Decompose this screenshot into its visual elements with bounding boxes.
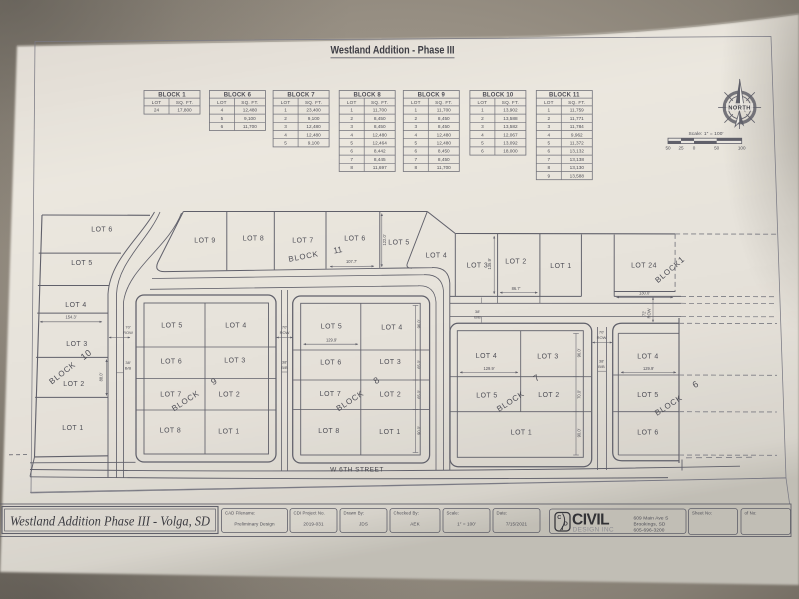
- svg-text:11,784: 11,784: [570, 124, 584, 129]
- svg-text:LOT 7: LOT 7: [160, 392, 182, 399]
- svg-text:2: 2: [284, 116, 287, 121]
- svg-text:BLOCK 7: BLOCK 7: [287, 92, 315, 98]
- svg-text:2019-031: 2019-031: [303, 522, 324, 527]
- svg-text:5: 5: [481, 141, 484, 146]
- svg-text:3: 3: [547, 124, 550, 129]
- svg-text:13,130: 13,130: [570, 165, 585, 170]
- svg-text:Preliminary Design: Preliminary Design: [234, 522, 275, 527]
- svg-text:LOT 4: LOT 4: [637, 354, 659, 361]
- svg-text:65.0′: 65.0′: [417, 390, 422, 399]
- svg-text:70′: 70′: [282, 325, 287, 330]
- svg-text:B/B: B/B: [125, 365, 132, 370]
- svg-text:LOT 6: LOT 6: [161, 359, 183, 366]
- svg-text:0: 0: [693, 146, 696, 151]
- svg-text:LOT 5: LOT 5: [388, 240, 410, 247]
- svg-text:8: 8: [350, 165, 353, 170]
- svg-text:130.0′: 130.0′: [639, 291, 650, 296]
- svg-text:LOT 6: LOT 6: [320, 360, 342, 367]
- svg-text:3: 3: [350, 124, 353, 129]
- svg-text:13,092: 13,092: [503, 141, 518, 146]
- svg-text:ROW: ROW: [123, 330, 133, 335]
- svg-text:LOT 4: LOT 4: [476, 353, 498, 360]
- svg-text:13,588: 13,588: [503, 116, 518, 121]
- svg-text:LOT 8: LOT 8: [243, 236, 265, 243]
- svg-text:18,000: 18,000: [503, 149, 518, 154]
- svg-text:LOT 6: LOT 6: [91, 227, 113, 234]
- svg-text:LOT: LOT: [478, 100, 488, 105]
- svg-text:LOT 6: LOT 6: [637, 430, 659, 437]
- svg-text:9,100: 9,100: [244, 116, 256, 121]
- svg-text:13,902: 13,902: [503, 108, 518, 113]
- svg-text:BLOCK 11: BLOCK 11: [549, 92, 580, 98]
- svg-text:LOT 5: LOT 5: [637, 392, 659, 399]
- svg-text:BLOCK 10: BLOCK 10: [482, 92, 513, 98]
- svg-text:LOT 2: LOT 2: [505, 259, 527, 266]
- svg-text:12,480: 12,480: [373, 132, 388, 137]
- svg-text:LOT 5: LOT 5: [476, 393, 498, 400]
- svg-text:122.0′: 122.0′: [382, 234, 387, 245]
- svg-text:24: 24: [154, 108, 160, 113]
- svg-text:BLOCK 6: BLOCK 6: [224, 92, 252, 98]
- svg-text:17,800: 17,800: [177, 108, 192, 113]
- svg-text:LOT 3: LOT 3: [224, 358, 246, 365]
- svg-text:CAD Filename:: CAD Filename:: [225, 511, 255, 516]
- svg-text:1″ = 100′: 1″ = 100′: [457, 522, 476, 527]
- svg-text:12,480: 12,480: [306, 132, 321, 137]
- svg-text:38′: 38′: [599, 359, 604, 364]
- svg-text:LOT 3: LOT 3: [66, 341, 88, 348]
- svg-text:8,450: 8,450: [374, 116, 386, 121]
- svg-text:Checked By:: Checked By:: [394, 511, 419, 516]
- svg-text:4: 4: [284, 132, 287, 137]
- svg-text:38′: 38′: [475, 309, 480, 314]
- svg-text:12,464: 12,464: [373, 141, 388, 146]
- svg-text:SQ. FT.: SQ. FT.: [502, 100, 519, 105]
- svg-text:8: 8: [414, 165, 417, 170]
- svg-text:4: 4: [414, 132, 417, 137]
- svg-text:4: 4: [350, 132, 353, 137]
- svg-text:SQ. FT.: SQ. FT.: [568, 100, 585, 105]
- svg-text:129.9′: 129.9′: [483, 366, 494, 371]
- svg-text:LOT 5: LOT 5: [161, 323, 183, 330]
- svg-text:1: 1: [547, 108, 550, 113]
- svg-text:38′: 38′: [282, 360, 287, 365]
- svg-text:JDS: JDS: [359, 522, 368, 527]
- svg-text:5: 5: [350, 141, 353, 146]
- svg-text:B/B: B/B: [598, 364, 605, 369]
- svg-text:LOT 2: LOT 2: [63, 381, 85, 388]
- svg-text:BLOCK 1: BLOCK 1: [158, 92, 186, 98]
- svg-text:90.0′: 90.0′: [417, 426, 422, 435]
- svg-text:70′: 70′: [599, 330, 604, 335]
- svg-text:12,067: 12,067: [503, 132, 518, 137]
- svg-text:1: 1: [414, 108, 417, 113]
- svg-text:8,442: 8,442: [374, 149, 386, 154]
- svg-text:Westland Addition - Phase III: Westland Addition - Phase III: [331, 45, 455, 57]
- svg-text:4: 4: [481, 132, 484, 137]
- svg-text:11,700: 11,700: [437, 165, 451, 170]
- svg-text:70.0′: 70.0′: [577, 390, 582, 399]
- svg-text:LOT: LOT: [152, 100, 162, 105]
- svg-text:Scale:: Scale:: [447, 511, 460, 516]
- svg-text:Westland Addition Phase III -: Westland Addition Phase III - Volga, SD: [10, 514, 210, 529]
- svg-text:LOT 24: LOT 24: [631, 263, 657, 270]
- svg-text:7: 7: [414, 157, 417, 162]
- svg-text:9: 9: [547, 173, 550, 178]
- svg-text:8,450: 8,450: [374, 124, 386, 129]
- svg-text:129.9′: 129.9′: [643, 366, 654, 371]
- svg-text:2: 2: [547, 116, 550, 121]
- svg-text:7: 7: [350, 157, 353, 162]
- svg-text:LOT: LOT: [544, 100, 554, 105]
- svg-text:W 6TH STREET: W 6TH STREET: [330, 467, 384, 474]
- svg-text:LOT 1: LOT 1: [218, 429, 240, 436]
- svg-text:LOT 1: LOT 1: [62, 425, 84, 432]
- svg-text:8,450: 8,450: [438, 149, 450, 154]
- svg-text:11,372: 11,372: [570, 141, 584, 146]
- svg-text:SQ. FT.: SQ. FT.: [435, 100, 452, 105]
- svg-text:8,450: 8,450: [438, 116, 450, 121]
- svg-text:6: 6: [481, 149, 484, 154]
- svg-text:B/B: B/B: [281, 365, 288, 370]
- svg-text:11,700: 11,700: [373, 108, 387, 113]
- svg-text:11,700: 11,700: [243, 124, 257, 129]
- svg-text:SQ. FT.: SQ. FT.: [371, 100, 388, 105]
- svg-text:6: 6: [414, 149, 417, 154]
- svg-text:13,582: 13,582: [503, 124, 518, 129]
- svg-text:38′: 38′: [125, 360, 130, 365]
- svg-text:3: 3: [481, 124, 484, 129]
- svg-text:LOT 1: LOT 1: [550, 263, 572, 270]
- svg-text:5: 5: [414, 141, 417, 146]
- svg-text:12,480: 12,480: [437, 132, 452, 137]
- svg-text:AEK: AEK: [410, 522, 420, 527]
- svg-text:CDI Project No.: CDI Project No.: [294, 511, 325, 516]
- svg-text:12,480: 12,480: [243, 108, 258, 113]
- svg-text:SQ. FT.: SQ. FT.: [305, 100, 322, 105]
- svg-text:9,100: 9,100: [308, 141, 320, 146]
- svg-text:LOT 7: LOT 7: [292, 238, 314, 245]
- svg-text:LOT: LOT: [217, 100, 227, 105]
- svg-text:LOT 3: LOT 3: [380, 359, 402, 366]
- svg-text:BLOCK 8: BLOCK 8: [354, 92, 382, 98]
- svg-text:129.9′: 129.9′: [326, 338, 337, 343]
- svg-text:13,132: 13,132: [570, 149, 585, 154]
- svg-text:LOT 4: LOT 4: [426, 253, 448, 260]
- svg-text:609 Main Ave S: 609 Main Ave S: [634, 516, 669, 522]
- svg-text:50: 50: [665, 146, 671, 151]
- svg-text:3: 3: [414, 124, 417, 129]
- svg-text:12,480: 12,480: [437, 141, 452, 146]
- svg-text:4: 4: [547, 132, 550, 137]
- svg-text:LOT 7: LOT 7: [320, 391, 342, 398]
- svg-text:of No:: of No:: [745, 511, 757, 516]
- svg-text:NORTH: NORTH: [728, 106, 750, 112]
- svg-text:LOT 1: LOT 1: [379, 429, 401, 436]
- svg-text:2: 2: [414, 116, 417, 121]
- svg-text:ROW: ROW: [597, 335, 607, 340]
- svg-text:5: 5: [547, 141, 550, 146]
- svg-text:LOT 3: LOT 3: [537, 354, 559, 361]
- svg-text:Drawn By:: Drawn By:: [344, 511, 365, 516]
- svg-text:4: 4: [221, 108, 224, 113]
- svg-text:65.0′: 65.0′: [417, 360, 422, 369]
- svg-text:25: 25: [678, 146, 684, 151]
- svg-text:LOT 8: LOT 8: [318, 428, 340, 435]
- svg-text:605-696-3200: 605-696-3200: [634, 528, 665, 534]
- svg-text:86.7′: 86.7′: [512, 286, 521, 291]
- svg-text:8: 8: [547, 165, 550, 170]
- svg-text:Brookings, SD: Brookings, SD: [634, 522, 666, 528]
- svg-text:LOT 2: LOT 2: [538, 392, 560, 399]
- svg-text:11,771: 11,771: [570, 116, 584, 121]
- svg-text:5: 5: [284, 141, 287, 146]
- svg-text:154.3′: 154.3′: [65, 315, 76, 320]
- svg-text:96.0′: 96.0′: [577, 348, 582, 357]
- svg-text:8,445: 8,445: [374, 157, 386, 162]
- svg-text:LOT 4: LOT 4: [65, 302, 87, 309]
- svg-text:13,138: 13,138: [570, 157, 585, 162]
- svg-text:9,100: 9,100: [308, 116, 320, 121]
- svg-text:Scale: 1″ = 100′: Scale: 1″ = 100′: [688, 131, 723, 137]
- svg-text:11,697: 11,697: [373, 165, 387, 170]
- svg-text:SQ. FT.: SQ. FT.: [241, 100, 258, 105]
- svg-text:23,400: 23,400: [306, 108, 321, 113]
- svg-text:LOT 3: LOT 3: [467, 263, 489, 270]
- svg-text:11,700: 11,700: [437, 108, 451, 113]
- svg-text:ROW: ROW: [647, 308, 652, 318]
- svg-text:13,588: 13,588: [570, 173, 585, 178]
- svg-text:7: 7: [547, 157, 550, 162]
- svg-text:LOT: LOT: [411, 100, 421, 105]
- svg-text:Date:: Date:: [497, 511, 508, 516]
- svg-text:B/B: B/B: [474, 315, 481, 320]
- svg-text:LOT 4: LOT 4: [381, 325, 403, 332]
- svg-text:1: 1: [284, 108, 287, 113]
- svg-text:2: 2: [481, 116, 484, 121]
- svg-text:1: 1: [350, 108, 353, 113]
- svg-text:LOT: LOT: [347, 100, 357, 105]
- svg-text:11,759: 11,759: [570, 108, 584, 113]
- svg-text:6: 6: [350, 149, 353, 154]
- svg-text:70′: 70′: [125, 325, 130, 330]
- svg-text:96.0′: 96.0′: [417, 319, 422, 328]
- svg-text:LOT: LOT: [281, 100, 291, 105]
- svg-text:LOT 8: LOT 8: [160, 428, 182, 435]
- svg-text:Sheet No:: Sheet No:: [692, 511, 712, 516]
- svg-text:88.0′: 88.0′: [98, 372, 103, 381]
- svg-text:12,480: 12,480: [306, 124, 321, 129]
- svg-text:LOT 2: LOT 2: [219, 392, 241, 399]
- svg-text:50: 50: [714, 146, 720, 151]
- svg-text:C: C: [557, 515, 561, 521]
- svg-text:LOT 5: LOT 5: [71, 260, 93, 267]
- svg-text:2: 2: [350, 116, 353, 121]
- svg-text:3: 3: [284, 124, 287, 129]
- svg-text:DESIGN INC: DESIGN INC: [573, 526, 614, 533]
- svg-text:LOT 1: LOT 1: [511, 430, 533, 437]
- svg-text:6: 6: [221, 124, 224, 129]
- svg-text:8,450: 8,450: [438, 124, 450, 129]
- svg-text:100: 100: [738, 146, 746, 151]
- svg-text:107.7′: 107.7′: [346, 259, 357, 264]
- svg-text:LOT 9: LOT 9: [194, 238, 216, 245]
- svg-text:8,450: 8,450: [438, 157, 450, 162]
- svg-text:LOT 4: LOT 4: [225, 323, 247, 330]
- svg-text:5: 5: [221, 116, 224, 121]
- svg-text:9,962: 9,962: [571, 132, 583, 137]
- svg-text:BLOCK 9: BLOCK 9: [418, 92, 446, 98]
- svg-text:90.0′: 90.0′: [577, 428, 582, 437]
- svg-text:6: 6: [547, 149, 550, 154]
- svg-text:LOT 5: LOT 5: [321, 324, 343, 331]
- svg-text:7/15/2021: 7/15/2021: [506, 522, 528, 527]
- svg-text:LOT 6: LOT 6: [344, 236, 366, 243]
- svg-text:SQ. FT.: SQ. FT.: [176, 100, 193, 105]
- svg-text:ROW: ROW: [280, 330, 290, 335]
- svg-text:LOT 2: LOT 2: [380, 392, 402, 399]
- svg-text:1: 1: [481, 108, 484, 113]
